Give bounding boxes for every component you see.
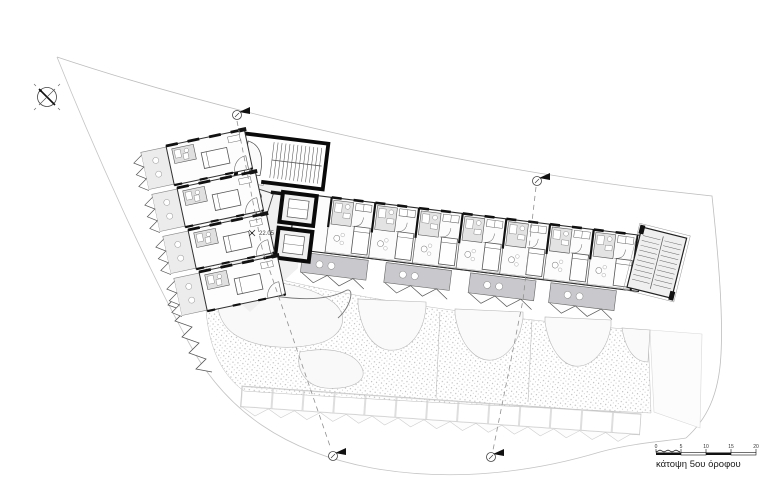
section-marker-icon	[487, 449, 505, 462]
terrace-faint-outline	[650, 330, 702, 428]
balcony-awning	[383, 263, 452, 300]
scale-bar: 0 5 10 15 20 κάτοψη 5ου όροφου	[655, 444, 759, 470]
balcony-awning	[547, 283, 616, 320]
floor-plan-sheet: 22.05 0 5 10 15 20 κάτοψη 5ου όροφου	[0, 0, 768, 493]
drawing-caption: κάτοψη 5ου όροφου	[656, 459, 741, 470]
scale-label: 0	[655, 444, 658, 450]
section-marker-icon	[533, 173, 551, 186]
scale-label: 20	[753, 444, 759, 450]
spot-elevation-label: 22.05	[259, 231, 275, 237]
scale-label: 5	[680, 444, 683, 450]
scale-label: 15	[728, 444, 734, 450]
floor-plan-drawing: 22.05 0 5 10 15 20 κάτοψη 5ου όροφου	[0, 0, 768, 493]
scale-label: 10	[703, 444, 709, 450]
north-arrow-icon	[34, 84, 60, 110]
section-marker-icon	[329, 448, 347, 461]
